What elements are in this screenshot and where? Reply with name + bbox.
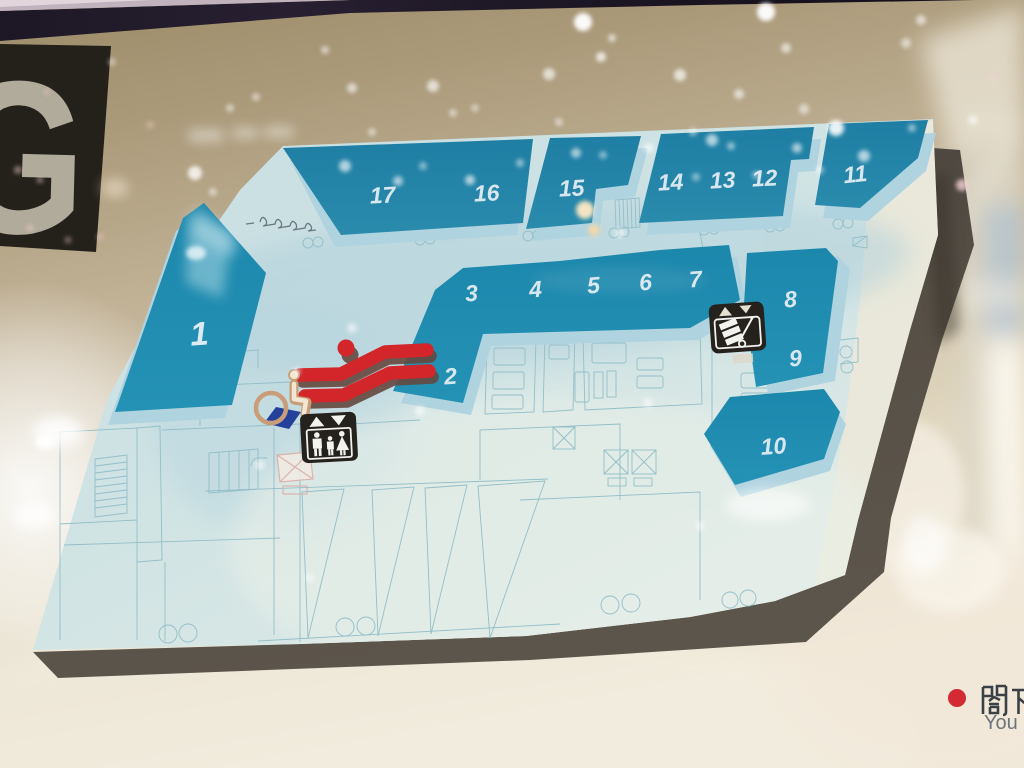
svg-text:You: You — [984, 712, 1018, 734]
svg-text:9: 9 — [788, 345, 803, 372]
svg-text:G: G — [0, 33, 89, 281]
svg-text:10: 10 — [760, 432, 788, 460]
svg-text:2: 2 — [442, 363, 458, 390]
svg-text:15: 15 — [558, 174, 586, 201]
svg-text:17: 17 — [369, 181, 397, 208]
svg-text:3: 3 — [464, 280, 479, 307]
svg-text:1: 1 — [189, 314, 210, 352]
svg-text:8: 8 — [783, 286, 798, 313]
svg-text:14: 14 — [657, 168, 684, 195]
svg-text:16: 16 — [473, 179, 500, 206]
svg-text:11: 11 — [842, 160, 868, 188]
svg-text:13: 13 — [709, 166, 736, 193]
